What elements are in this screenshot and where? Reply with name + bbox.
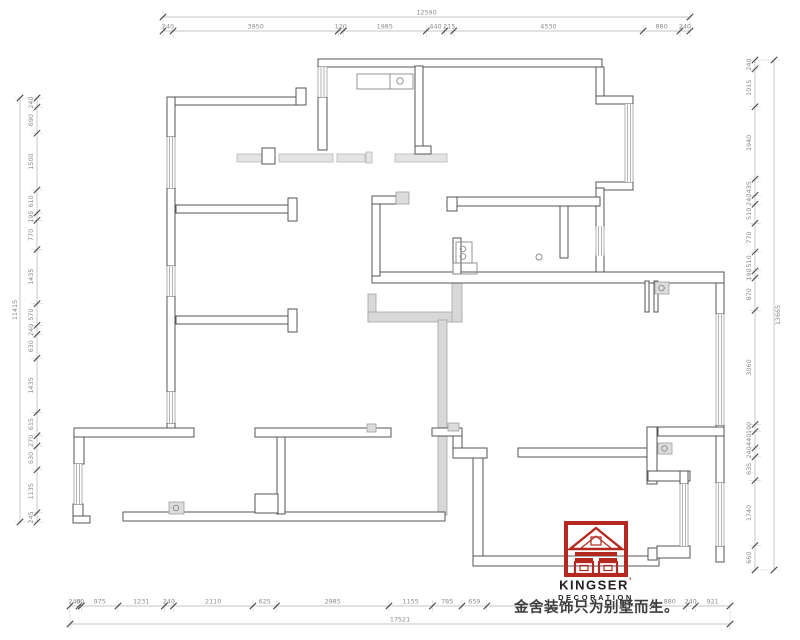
dim-label: 770 [27,229,35,241]
dim-label: 630 [27,340,35,352]
dim-label: 3950 [248,23,264,31]
window-glass [716,314,724,425]
dim-label: 60 [76,598,84,606]
dim-label: 240 [745,194,753,206]
dim-label: 630 [27,452,35,464]
dim-label: 195 [27,211,35,223]
floor-plan-canvas: 2403950120198544021545308802401259024060… [0,0,800,640]
wall-outlet-box-1 [655,282,669,294]
window-glass [167,392,175,423]
dim-label: 659 [468,598,480,606]
wall-block-2 [448,423,459,431]
window-glass [716,483,724,546]
dim-label: 1740 [745,505,753,521]
company-tagline: 金舍装饰只为别墅而生。 [514,596,679,617]
dim-label: 625 [259,598,271,606]
dim-label: 240 [745,58,753,70]
dim-label: 440 [429,23,441,31]
dim-label: 1940 [745,135,753,151]
dim-strip-top: 24039501201985440215453088024012590 [160,9,693,38]
window-glass [680,484,688,546]
dim-label: 190 [745,422,753,434]
dim-label: 240 [27,96,35,108]
brand-name: KINGSER’ [534,577,658,592]
dim-label: 510 [745,208,753,220]
dim-label: 1435 [27,377,35,393]
dim-label: 510 [745,255,753,267]
window-glass [74,464,82,504]
dim-label: 215 [443,23,455,31]
wall-outlet-box-3 [658,443,672,454]
dim-label: 921 [707,598,719,606]
wall-block-3 [396,192,409,204]
dim-label: 240 [163,598,175,606]
dim-label: 17521 [390,616,410,624]
dim-label: 615 [27,418,35,430]
dim-strip-right: 2401015194043524051077051019087030601904… [745,57,782,573]
dim-label: 440 [745,434,753,446]
dim-label: 1015 [745,80,753,96]
dim-label: 870 [745,288,753,300]
dim-label: 11415 [11,300,19,320]
dim-label: 1135 [27,483,35,499]
dim-label: 240 [685,598,697,606]
window-glass [596,226,604,256]
dim-label: 240 [745,446,753,458]
dim-label: 190 [745,268,753,280]
dim-label: 770 [745,231,753,243]
dim-label: 435 [745,181,753,193]
dim-label: 2110 [205,598,221,606]
floor-drain [536,254,542,260]
window-glass [625,104,633,182]
dim-label: 660 [745,552,753,564]
dim-label: 610 [27,195,35,207]
dim-label: 2985 [325,598,341,606]
window-glass [167,266,175,296]
dim-label: 13665 [774,305,782,325]
dim-label: 3060 [745,359,753,375]
window-glass [318,67,327,97]
dim-label: 1155 [403,598,419,606]
dim-label: 570 [27,308,35,320]
dim-label: 1985 [377,23,393,31]
dim-label: 12590 [416,9,436,17]
dim-label: 785 [441,598,453,606]
wall-block-1 [367,424,376,432]
dim-strip-left: 2406901500610195770143557024063014356152… [11,95,43,525]
hatched-walls [368,281,462,515]
dim-label: 975 [94,598,106,606]
dim-label: 880 [655,23,667,31]
brand-trademark: ’ [629,576,633,586]
window-glass [167,137,175,188]
dim-label: 120 [335,23,347,31]
wall-outlet-box-2 [169,502,184,514]
dim-label: 635 [745,463,753,475]
dim-label: 240 [679,23,691,31]
dim-label: 690 [27,114,35,126]
dim-label: 1231 [133,598,149,606]
kitchen-counter [357,74,413,89]
dim-label: 4530 [540,23,556,31]
dim-label: 240 [162,23,174,31]
floor-plan-drawing: 2403950120198544021545308802401259024060… [0,0,800,640]
kingser-seal-icon [566,523,626,575]
dim-label: 270 [27,435,35,447]
dim-label: 240 [27,324,35,336]
dim-label: 1435 [27,268,35,284]
dim-label: 1500 [27,153,35,169]
dim-label: 245 [27,511,35,523]
